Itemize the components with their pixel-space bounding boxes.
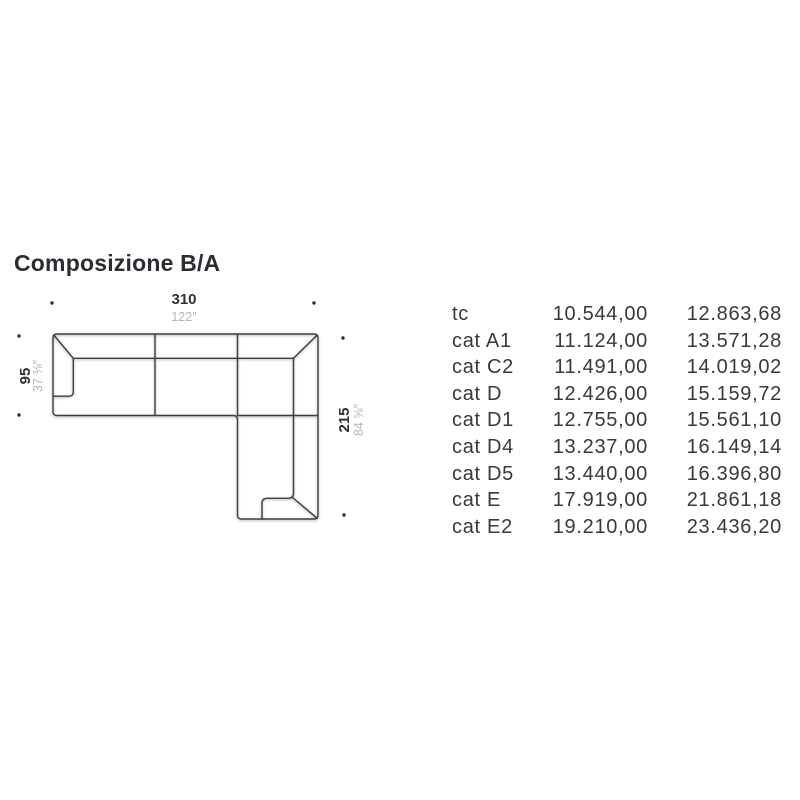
price-column-1: 11.124,00 (552, 328, 648, 355)
price-column-2: 16.396,80 (648, 461, 782, 488)
price-table: tc 10.544,00 12.863,68 cat A1 11.124,00 … (452, 301, 782, 540)
right-backrest-inner-line (262, 358, 294, 518)
bottom-arm-miter (292, 497, 317, 518)
table-row: cat D1 12.755,00 15.561,10 (452, 407, 782, 434)
table-row: tc 10.544,00 12.863,68 (452, 301, 782, 328)
category-label: cat A1 (452, 328, 552, 355)
table-row: cat E2 19.210,00 23.436,20 (452, 514, 782, 541)
price-column-2: 12.863,68 (648, 301, 782, 328)
price-column-2: 23.436,20 (648, 514, 782, 541)
category-label: tc (452, 301, 552, 328)
price-column-1: 19.210,00 (552, 514, 648, 541)
table-row: cat A1 11.124,00 13.571,28 (452, 328, 782, 355)
category-label: cat D5 (452, 461, 552, 488)
table-row: cat D5 13.440,00 16.396,80 (452, 461, 782, 488)
price-column-2: 16.149,14 (648, 434, 782, 461)
left-arm-miter (54, 335, 74, 358)
tick-width-right (312, 301, 315, 304)
catalog-page: Composizione B/A (0, 0, 800, 800)
dimension-depth-inches: 37 ⅜″ (31, 334, 45, 418)
sofa-outline-group (53, 334, 318, 519)
price-column-2: 15.159,72 (648, 381, 782, 408)
price-column-2: 15.561,10 (648, 407, 782, 434)
price-column-1: 12.426,00 (552, 381, 648, 408)
price-column-1: 12.755,00 (552, 407, 648, 434)
dimension-width-inches: 122″ (134, 310, 234, 324)
price-column-1: 10.544,00 (552, 301, 648, 328)
dimension-length-inches: 84 ⅝″ (352, 375, 366, 465)
category-label: cat D4 (452, 434, 552, 461)
category-label: cat C2 (452, 354, 552, 381)
price-column-1: 13.237,00 (552, 434, 648, 461)
price-column-2: 13.571,28 (648, 328, 782, 355)
category-label: cat E2 (452, 514, 552, 541)
sofa-composition-diagram: 310 122″ 95 37 ⅜″ 215 84 ⅝″ (0, 280, 420, 550)
sofa-outer-boundary (53, 334, 318, 519)
category-label: cat D1 (452, 407, 552, 434)
price-column-2: 21.861,18 (648, 487, 782, 514)
category-label: cat E (452, 487, 552, 514)
tick-length-top (341, 336, 344, 339)
dimension-length-cm: 215 (337, 375, 353, 465)
price-column-1: 11.491,00 (552, 354, 648, 381)
table-row: cat C2 11.491,00 14.019,02 (452, 354, 782, 381)
price-column-1: 13.440,00 (552, 461, 648, 488)
page-title: Composizione B/A (14, 250, 220, 277)
right-backrest-miter (294, 335, 318, 358)
price-column-2: 14.019,02 (648, 354, 782, 381)
table-row: cat E 17.919,00 21.861,18 (452, 487, 782, 514)
table-row: cat D4 13.237,00 16.149,14 (452, 434, 782, 461)
tick-width-left (50, 301, 53, 304)
price-column-1: 17.919,00 (552, 487, 648, 514)
tick-length-bottom (342, 513, 345, 516)
left-arm-inner-line (54, 358, 74, 396)
category-label: cat D (452, 381, 552, 408)
table-row: cat D 12.426,00 15.159,72 (452, 381, 782, 408)
dimension-width-cm: 310 (134, 292, 234, 308)
